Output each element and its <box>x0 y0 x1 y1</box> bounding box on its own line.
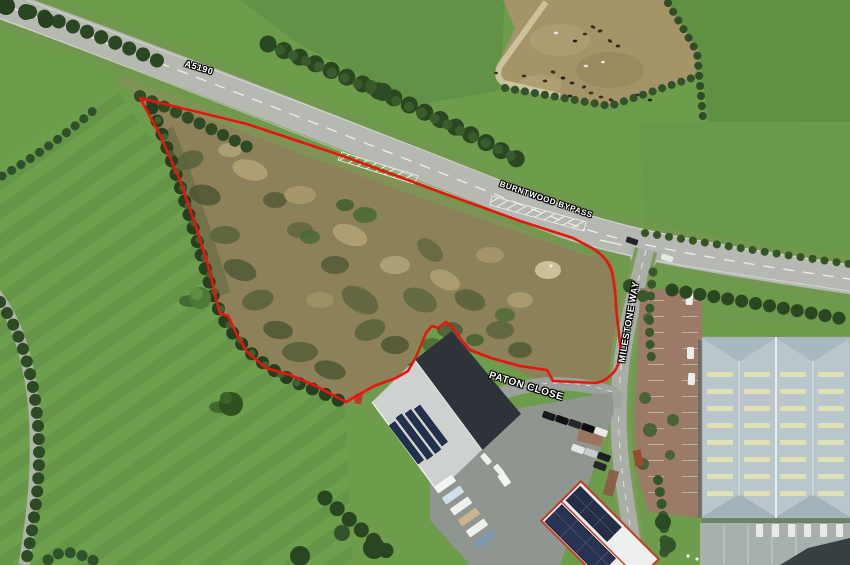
car-park-right <box>634 288 702 518</box>
aerial-photo-canvas <box>0 0 850 565</box>
warehouse-bottom-right <box>700 523 850 565</box>
warehouse-right <box>698 337 850 523</box>
aerial-map: A5190 BURNTWOOD BYPASS MILESTONE WAY PAT… <box>0 0 850 565</box>
